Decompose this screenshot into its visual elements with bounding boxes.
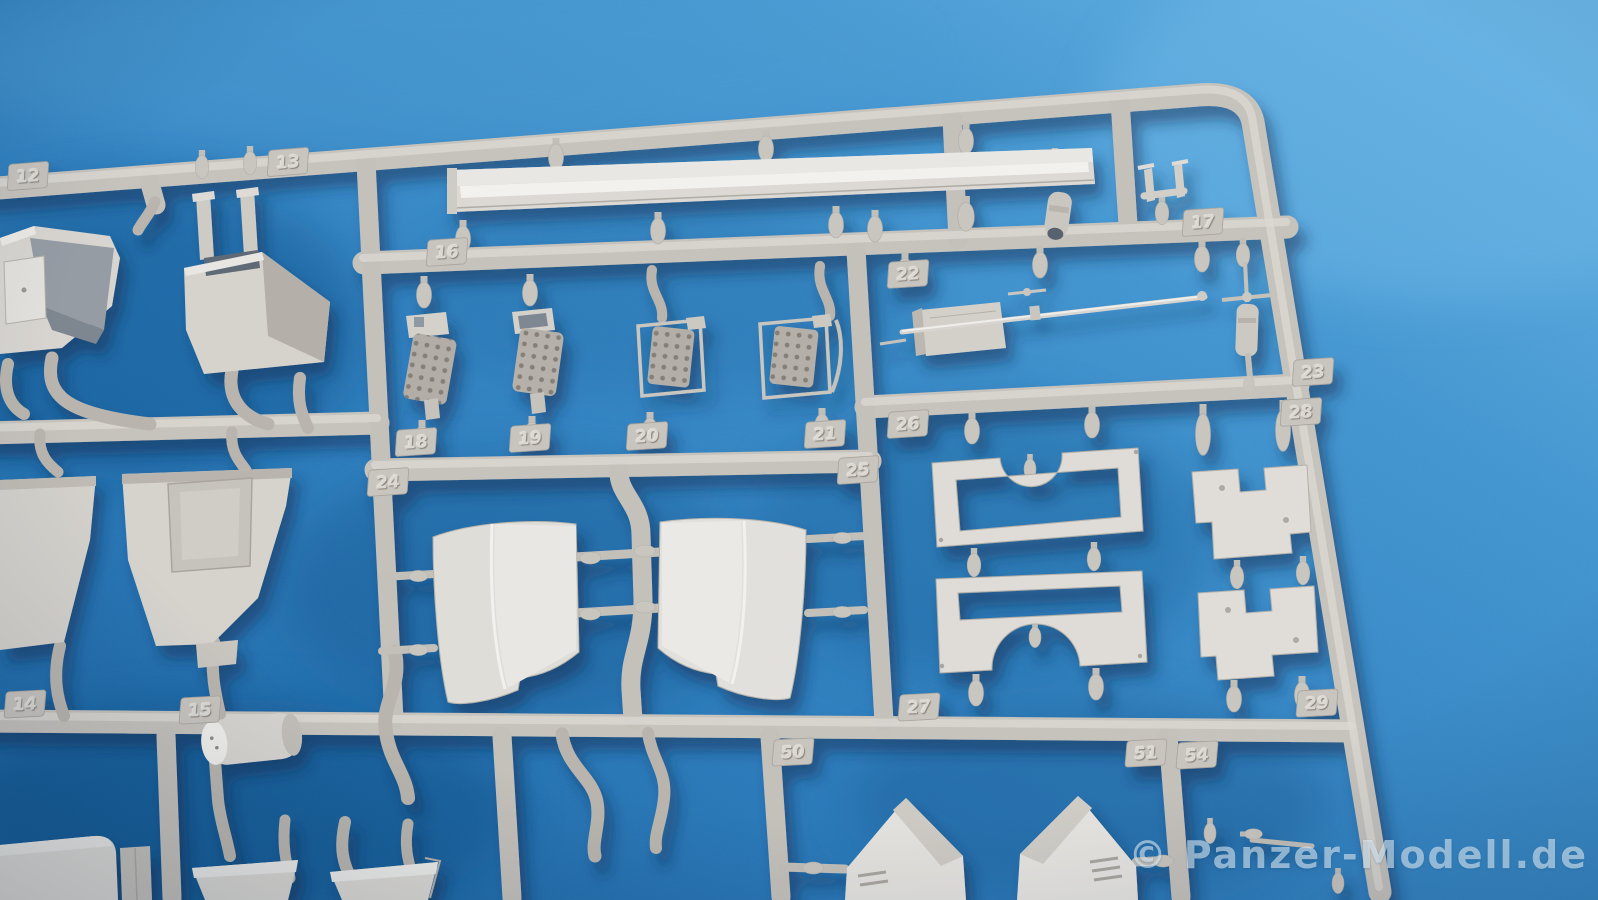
watermark-text: © Panzer-Modell.de: [1128, 833, 1588, 877]
photo-canvas: 12 13 14 15 16 17: [0, 0, 1598, 900]
vignette: [0, 0, 1598, 900]
sprue-photo: 12 13 14 15 16 17: [0, 0, 1598, 900]
